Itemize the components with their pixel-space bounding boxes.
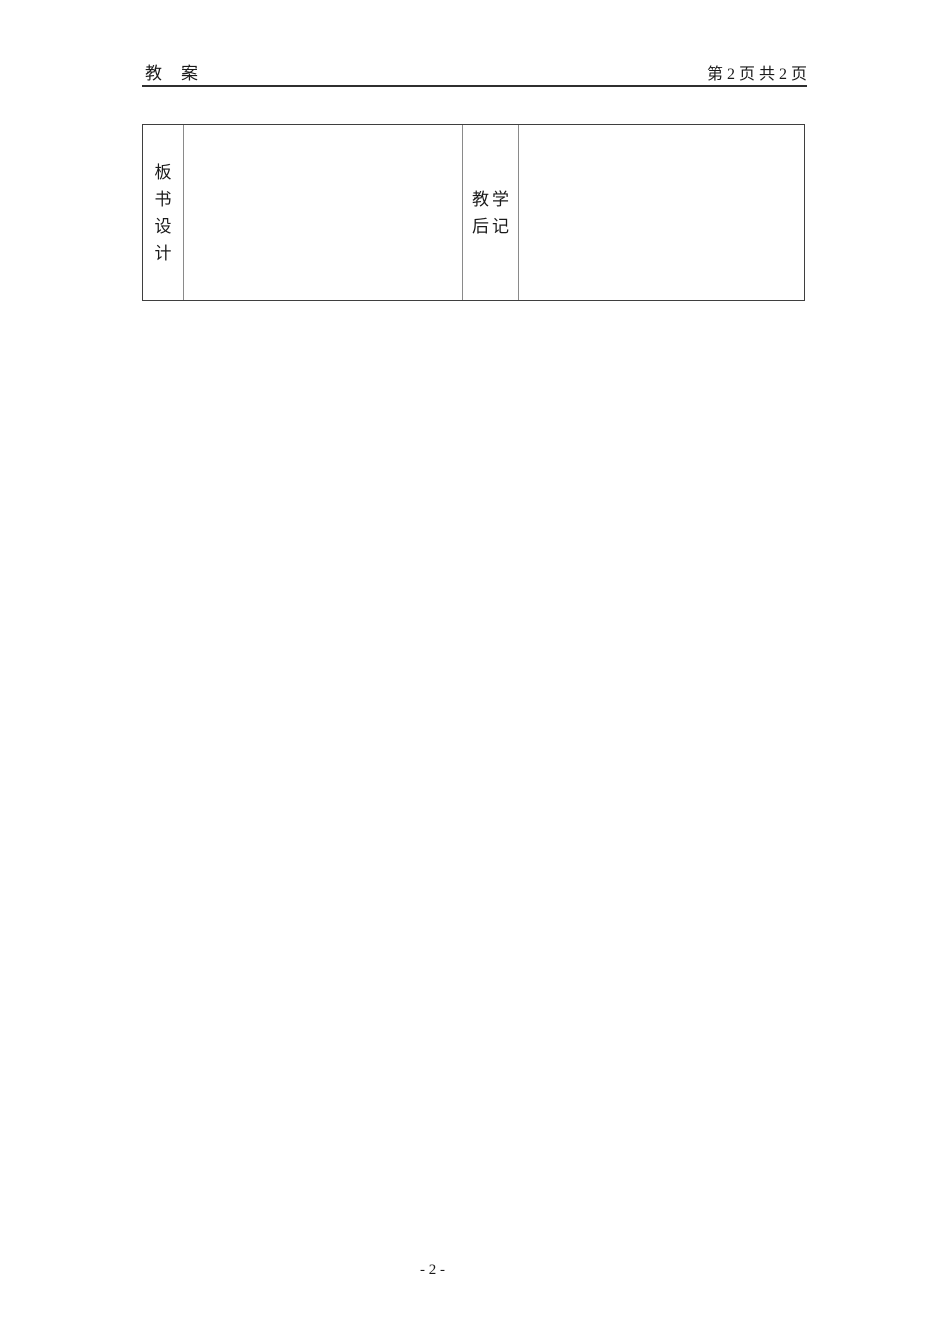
board-design-label-char: 书 (155, 186, 172, 213)
board-design-label-char: 计 (155, 240, 172, 267)
teaching-notes-content-cell (518, 125, 804, 300)
header-title: 教 案 (145, 59, 199, 84)
header-rule (142, 85, 807, 87)
footer-page-number: - 2 - (420, 1262, 445, 1278)
header-page-info: 第 2 页 共 2 页 (707, 60, 807, 84)
lesson-plan-table: 板 书 设 计 教学 后记 (142, 124, 805, 301)
page-footer: - 2 - (0, 1245, 850, 1296)
board-design-label-char: 设 (155, 213, 172, 240)
document-page: 教 案 第 2 页 共 2 页 板 书 设 计 教学 后记 - 2 - (0, 0, 950, 1344)
teaching-notes-label-cell: 教学 后记 (462, 125, 518, 300)
board-design-content-cell (183, 125, 462, 300)
teaching-notes-label-line: 教学 (469, 186, 512, 213)
page-header: 教 案 第 2 页 共 2 页 (145, 59, 807, 84)
board-design-label-cell: 板 书 设 计 (143, 125, 183, 300)
teaching-notes-label-line: 后记 (469, 213, 512, 240)
board-design-label-char: 板 (155, 159, 172, 186)
